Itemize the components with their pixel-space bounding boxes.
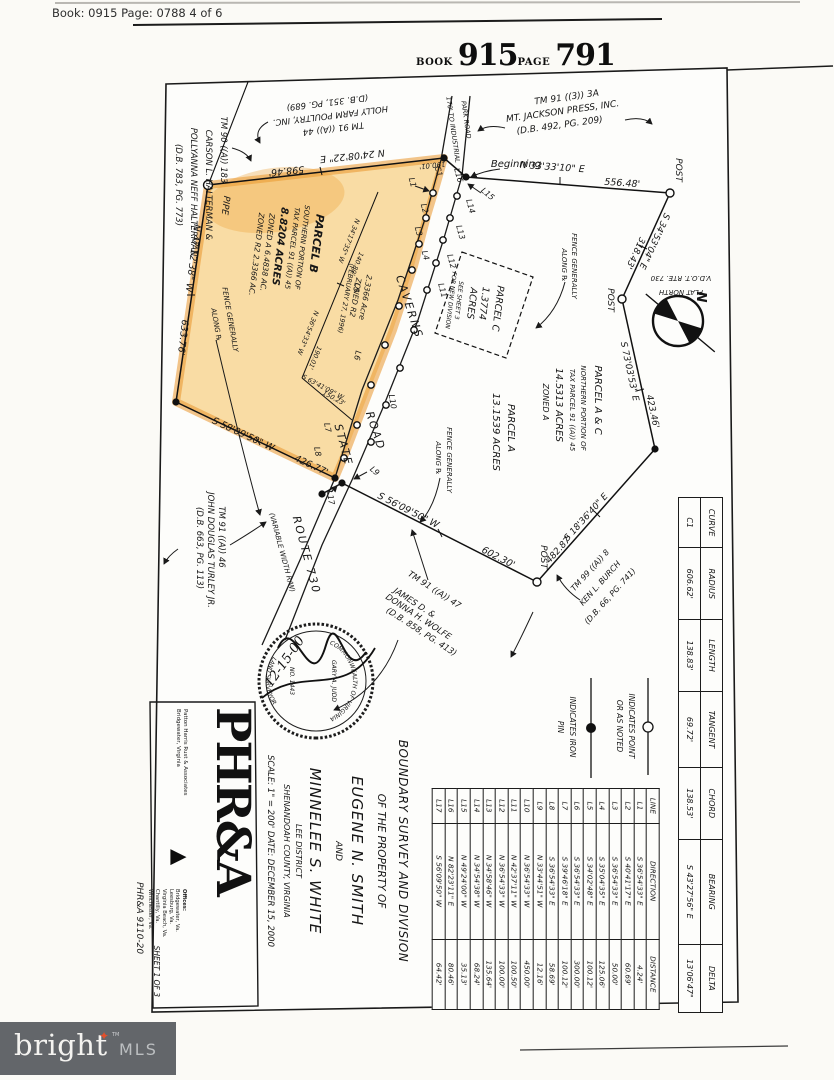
table-cell: L2	[621, 789, 634, 824]
table-cell: L14	[470, 789, 483, 824]
svg-text:14.5313 ACRES: 14.5313 ACRES	[553, 368, 564, 442]
column-header: BEARING	[701, 839, 723, 944]
column-header: DIRECTION	[647, 823, 660, 939]
sheet-number: SHEET 1 OF 3	[152, 946, 161, 997]
table-cell: 60.69'	[621, 939, 634, 1009]
svg-text:TM 90 ((A)) 183: TM 90 ((A)) 183	[218, 117, 228, 184]
svg-text:CARSON L. HALTERMAN &: CARSON L. HALTERMAN &	[203, 130, 213, 241]
table-row: L9N 33'44'51" W12.16'	[533, 789, 546, 1010]
table-cell: S 36'54'33" E	[634, 823, 647, 939]
book-page-stamp: BOOK 915PAGE 791	[416, 38, 615, 73]
district-label: LEE DISTRICT	[294, 824, 303, 878]
svg-text:PARCEL A & C: PARCEL A & C	[592, 365, 603, 434]
phra-firm-text: Patton Harris Rust & Associates Bridgewa…	[174, 709, 188, 829]
table-cell: N 34'58'46" W	[483, 823, 496, 939]
table-cell: L8	[546, 789, 559, 824]
svg-text:PARCEL A: PARCEL A	[505, 404, 516, 452]
table-cell: 100.12'	[558, 939, 571, 1009]
column-header: LINE	[647, 789, 660, 824]
curve-table: CURVERADIUSLENGTHTANGENTCHORDBEARINGDELT…	[678, 497, 723, 1013]
table-cell: N 36'54'33" W	[521, 823, 534, 939]
county-label: SHENANDOAH COUNTY, VIRGINIA	[282, 784, 291, 917]
post-label-1: POST	[673, 158, 683, 183]
column-header: TANGENT	[701, 692, 723, 768]
table-row: L14N 34'54'38" W68.24'	[470, 789, 483, 1010]
scan-artifact-line	[520, 1046, 788, 1050]
table-row: L5S 34'02'48" E100.12'	[584, 789, 597, 1010]
table-cell: 100.50'	[508, 939, 521, 1009]
table-cell: S 39'46'18" E	[558, 823, 571, 939]
beginning-label: Beginning	[491, 159, 541, 170]
svg-text:(D.B. 783, PG. 773): (D.B. 783, PG. 773)	[173, 144, 183, 226]
table-cell: 68.24'	[470, 939, 483, 1009]
table-cell: 450.00'	[521, 939, 534, 1009]
table-cell: N 42'37'11" W	[508, 823, 521, 939]
table-row: L7S 39'46'18" E100.12'	[558, 789, 571, 1010]
legend-iron-label: INDICATES IRON	[568, 696, 577, 757]
column-header: DELTA	[701, 944, 723, 1012]
table-cell: 138.83'	[679, 620, 701, 692]
owner-name-1: EUGENE N. SMITH	[348, 776, 366, 926]
title-and: AND	[333, 841, 343, 861]
svg-text:(D.B. 663, PG. 113): (D.B. 663, PG. 113)	[194, 507, 204, 589]
svg-text:TM 91 ((A)) 46: TM 91 ((A)) 46	[216, 506, 226, 568]
table-cell: 300.00'	[571, 939, 584, 1009]
table-cell: 4.24'	[634, 939, 647, 1009]
table-row: L6S 36'54'33" E300.00'	[571, 789, 584, 1010]
plat-north-label: V.D.O.T. RTE. 730	[650, 274, 711, 282]
table-row: C1606.62'138.83'69.72'138.53'S 43'27'56"…	[679, 498, 701, 1013]
table-header-row: LINEDIRECTIONDISTANCE	[647, 789, 660, 1010]
table-row: L2S 40'41'17" E60.69'	[621, 789, 634, 1010]
table-cell: L4	[596, 789, 609, 824]
table-cell: C1	[679, 498, 701, 548]
table-cell: S 56'09'50" W	[433, 823, 446, 939]
phra-firm-name: Patton Harris Rust & Associates	[182, 709, 188, 795]
post-label-3: POST	[538, 545, 548, 570]
title-line-1: BOUNDARY SURVEY AND DIVISION	[396, 740, 410, 962]
table-row: L16N 82'23'11" E80.46'	[445, 789, 458, 1010]
legend-point-label2: OR AS NOTED	[615, 700, 624, 753]
svg-text:L5: L5	[351, 282, 362, 293]
book-label: BOOK	[416, 57, 453, 68]
svg-text:TAX PARCEL 91 ((A)) 45: TAX PARCEL 91 ((A)) 45	[568, 369, 576, 452]
table-cell: L3	[609, 789, 622, 824]
table-cell: 35.13'	[458, 939, 471, 1009]
legend-iron-label2: PIN	[556, 721, 565, 734]
table-cell: 135.64'	[483, 939, 496, 1009]
table-cell: 606.62'	[679, 548, 701, 620]
phra-triangle-icon: ▲	[168, 849, 192, 865]
table-cell: S 34'02'48" E	[584, 823, 597, 939]
table-cell: N 82'23'11" E	[445, 823, 458, 939]
line-table: LINEDIRECTIONDISTANCEL1S 36'54'33" E4.24…	[432, 788, 660, 1010]
table-cell: L5	[584, 789, 597, 824]
bright-mls-logo: bright ✦ TM MLS	[0, 1022, 176, 1075]
table-cell: S 35'04'35" E	[596, 823, 609, 939]
legend-point-label: INDICATES POINT	[627, 694, 636, 760]
seal-license-number: NO. 1443	[288, 667, 295, 695]
phra-logo: PHR&A	[205, 707, 260, 937]
phra-offices-list: Bridgewater, Va. Leesburg, Va. Virginia …	[148, 889, 181, 938]
table-cell: 125.06'	[596, 939, 609, 1009]
svg-text:FENCE GENERALLY: FENCE GENERALLY	[570, 233, 578, 300]
table-row: L17S 56'09'50" W64.42'	[433, 789, 446, 1010]
table-cell: N 34'54'38" W	[470, 823, 483, 939]
table-cell: L12	[495, 789, 508, 824]
table-cell: L1	[634, 789, 647, 824]
table-cell: N 49'24'00" W	[458, 823, 471, 939]
stamp-underline-bleed	[727, 66, 833, 70]
table-cell: L16	[445, 789, 458, 824]
title-line-2: OF THE PROPERTY OF	[375, 794, 387, 909]
mls-wordmark: MLS	[119, 1040, 158, 1059]
page-label: PAGE	[517, 57, 550, 68]
svg-text:ZONED A: ZONED A	[541, 383, 550, 421]
column-header: LENGTH	[701, 620, 723, 692]
page-number: 791	[555, 38, 615, 73]
title-block: BOUNDARY SURVEY AND DIVISION OF THE PROP…	[252, 692, 418, 1010]
phra-offices: Offices: Bridgewater, Va. Leesburg, Va. …	[147, 889, 194, 938]
scan-edge-line	[55, 2, 800, 3]
table-row: L3S 36'54'33" E50.00'	[609, 789, 622, 1010]
table-cell: 12.16'	[533, 939, 546, 1009]
table-cell: 58.69'	[546, 939, 559, 1009]
table-cell: L10	[521, 789, 534, 824]
table-row: L4S 35'04'35" E125.06'	[596, 789, 609, 1010]
table-cell: 138.53'	[679, 767, 701, 839]
table-cell: S 36'54'33" E	[546, 823, 559, 939]
table-cell: L6	[571, 789, 584, 824]
trademark-symbol: TM	[112, 1032, 119, 1038]
table-cell: 50.00'	[609, 939, 622, 1009]
column-header: DISTANCE	[647, 939, 660, 1009]
column-header: CHORD	[701, 767, 723, 839]
table-row: L1S 36'54'33" E4.24'	[634, 789, 647, 1010]
table-cell: N 33'44'51" W	[533, 823, 546, 939]
phra-job-number: PHR&A 9110-20	[130, 882, 144, 1017]
table-cell: S 40'41'17" E	[621, 823, 634, 939]
scan-book-page-header: Book: 0915 Page: 0788 4 of 6	[52, 6, 222, 20]
table-cell: L11	[508, 789, 521, 824]
table-cell: L15	[458, 789, 471, 824]
svg-text:JOHN DOUGLAS TURLEY JR.: JOHN DOUGLAS TURLEY JR.	[205, 490, 215, 608]
table-cell: L13	[483, 789, 496, 824]
table-cell: S 36'54'33" E	[609, 823, 622, 939]
table-row: L10N 36'54'33" W450.00'	[521, 789, 534, 1010]
table-cell: 80.46'	[445, 939, 458, 1009]
table-cell: N 36'54'33" W	[495, 823, 508, 939]
plat-north-label2: PLAT NORTH	[658, 288, 703, 296]
table-cell: L17	[433, 789, 446, 824]
svg-text:ALONG ℞: ALONG ℞	[560, 247, 568, 281]
table-row: L13N 34'58'46" W135.64'	[483, 789, 496, 1010]
svg-text:L8: L8	[312, 446, 323, 457]
table-row: L11N 42'37'11" W100.50'	[508, 789, 521, 1010]
table-cell: 69.72'	[679, 692, 701, 768]
table-row: L8S 36'54'33" E58.69'	[546, 789, 559, 1010]
phra-firm-city: Bridgewater, Virginia	[175, 709, 181, 767]
table-row: L15N 49'24'00" W35.13'	[458, 789, 471, 1010]
owner-name-2: MINNELEE S. WHITE	[306, 768, 324, 935]
table-cell: 64.42'	[433, 939, 446, 1009]
svg-text:NORTHERN PORTION OF: NORTHERN PORTION OF	[579, 365, 587, 451]
star-icon: ✦	[99, 1029, 109, 1043]
scale-date-label: SCALE: 1" = 200' DATE: DECEMBER 15, 2000	[265, 755, 275, 947]
table-cell: 13'06'47"	[679, 944, 701, 1012]
table-cell: S 43'27'56" E	[679, 839, 701, 944]
table-cell: 100.12'	[584, 939, 597, 1009]
column-header: RADIUS	[701, 548, 723, 620]
table-header-row: CURVERADIUSLENGTHTANGENTCHORDBEARINGDELT…	[701, 498, 723, 1013]
table-cell: L9	[533, 789, 546, 824]
svg-text:L6: L6	[352, 350, 363, 361]
phra-block: PHR&A Patton Harris Rust & Associates Br…	[152, 703, 254, 1005]
table-cell: 100.00'	[495, 939, 508, 1009]
table-cell: L7	[558, 789, 571, 824]
bright-wordmark: bright	[14, 1028, 108, 1062]
svg-text:ALONG ℞: ALONG ℞	[434, 440, 442, 474]
svg-text:13.1539 ACRES: 13.1539 ACRES	[490, 393, 501, 472]
column-header: CURVE	[701, 498, 723, 548]
book-number: 915	[458, 38, 518, 73]
phra-offices-label: Offices:	[181, 889, 187, 911]
table-cell: S 36'54'33" E	[571, 823, 584, 939]
svg-text:FENCE GENERALLY: FENCE GENERALLY	[445, 427, 453, 494]
post-label-2: POST	[605, 288, 615, 313]
table-row: L12N 36'54'33" W100.00'	[495, 789, 508, 1010]
